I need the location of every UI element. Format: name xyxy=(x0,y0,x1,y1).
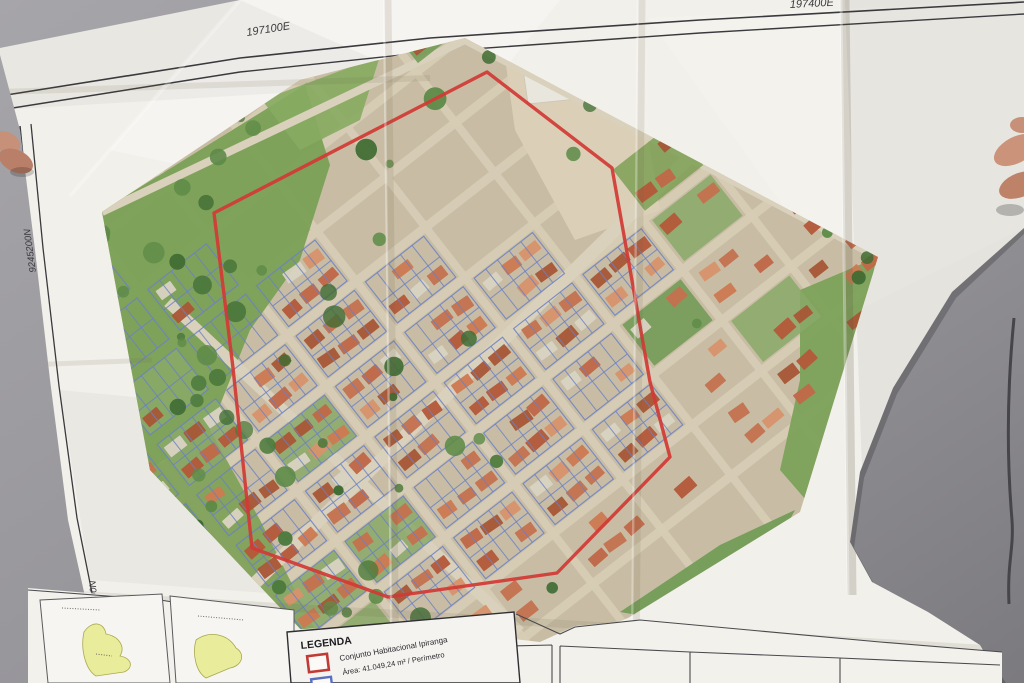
inset-frame xyxy=(170,596,294,683)
tree xyxy=(209,369,226,386)
tree xyxy=(566,147,580,161)
tree xyxy=(192,468,205,481)
tree xyxy=(170,399,186,415)
tree xyxy=(323,305,345,327)
tree xyxy=(355,139,377,161)
tree xyxy=(318,438,328,448)
tree xyxy=(245,120,261,136)
finger-shadow xyxy=(10,167,34,177)
tree xyxy=(205,500,217,512)
tree xyxy=(692,319,702,329)
tree xyxy=(473,433,485,445)
tree xyxy=(852,270,866,284)
tree xyxy=(223,259,237,273)
tree xyxy=(197,345,217,365)
tree xyxy=(275,466,296,487)
tree xyxy=(169,254,185,270)
legend-symbol-red-square xyxy=(307,654,329,672)
map-photo-canvas: 197100E 197400E 9245200N 9245000N xyxy=(0,0,1024,683)
tree xyxy=(174,179,191,196)
inset-map-state xyxy=(40,594,170,683)
tree xyxy=(190,394,203,407)
tree xyxy=(117,286,129,298)
tree xyxy=(256,265,267,276)
tree xyxy=(333,485,343,495)
tree xyxy=(461,331,477,347)
finger-shadow xyxy=(996,204,1024,216)
tree xyxy=(177,338,186,347)
tree xyxy=(198,195,213,210)
tree xyxy=(320,284,337,301)
tree xyxy=(193,275,212,294)
photo-of-folded-map: 197100E 197400E 9245200N 9245000N xyxy=(0,0,1024,683)
tree xyxy=(219,410,234,425)
inset-map-municipality xyxy=(170,596,294,683)
tree xyxy=(445,436,465,456)
tree xyxy=(279,354,291,366)
tree xyxy=(272,580,286,594)
tree xyxy=(143,242,165,264)
tree xyxy=(546,582,558,594)
tree xyxy=(373,233,387,247)
tree xyxy=(259,437,275,453)
legend-symbol-blue-square xyxy=(311,677,333,683)
tree xyxy=(278,531,293,546)
tree xyxy=(191,375,207,391)
tree xyxy=(358,560,378,580)
tree xyxy=(490,455,503,468)
tree xyxy=(210,149,227,166)
